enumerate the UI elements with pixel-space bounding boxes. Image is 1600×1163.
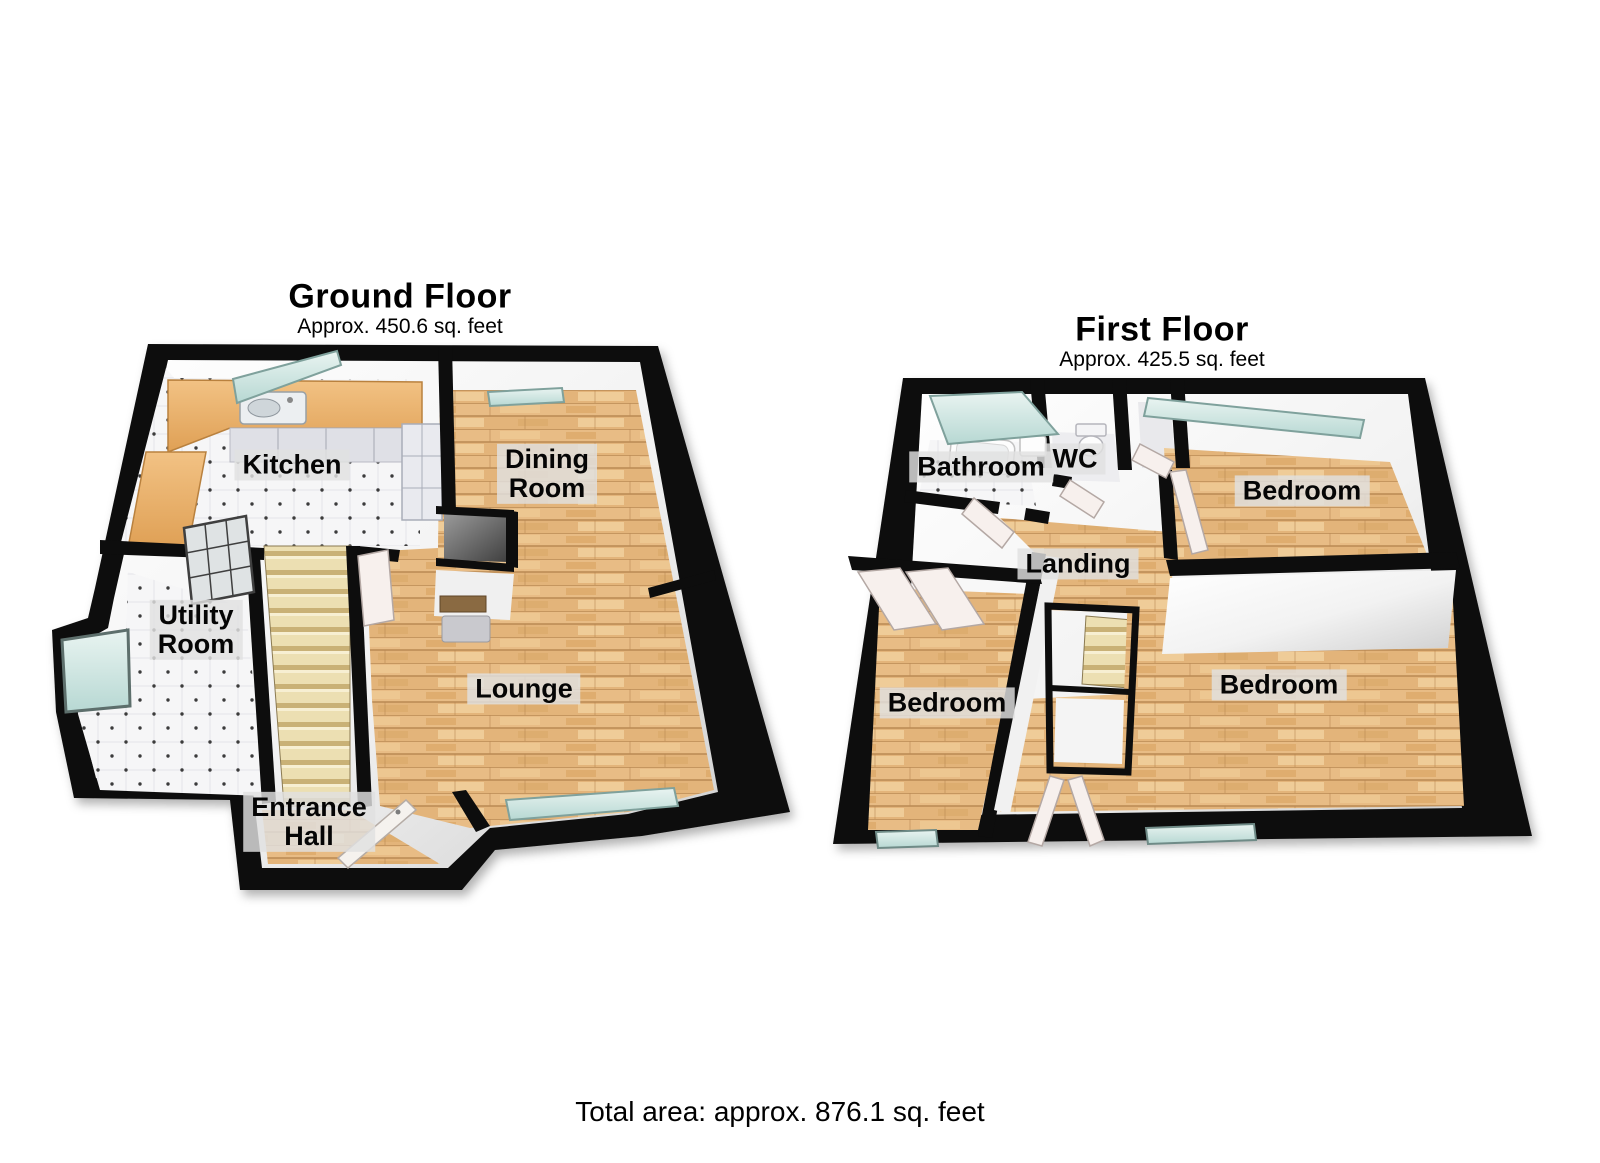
alcove-interior [444,514,508,562]
bedroom-bl-window [876,830,938,848]
bedroom-br-window [1146,824,1256,844]
utility-glass-door [184,516,254,604]
ground-floor-plan [52,344,790,890]
hall-lounge-door [358,550,394,626]
floorplan-page: { "ground_floor": { "title": "Ground Flo… [0,0,1600,1163]
alcove-wall-right [506,510,518,568]
kitchen-cabinet-faces [230,428,420,462]
bathroom-sink [1020,436,1046,456]
utility-window [62,630,130,712]
dining-table [440,596,486,612]
wall-face-below-bedroom-tr [1162,570,1456,654]
stairwell-cupboard-divider [1050,688,1130,692]
floorplan-canvas [0,0,1600,1163]
first-floor-plan [833,378,1532,848]
first-staircase [1082,616,1132,688]
dining-chair [442,616,490,642]
dining-window [488,388,564,406]
cupboard-interior [1054,698,1124,764]
toilet [1076,424,1106,456]
